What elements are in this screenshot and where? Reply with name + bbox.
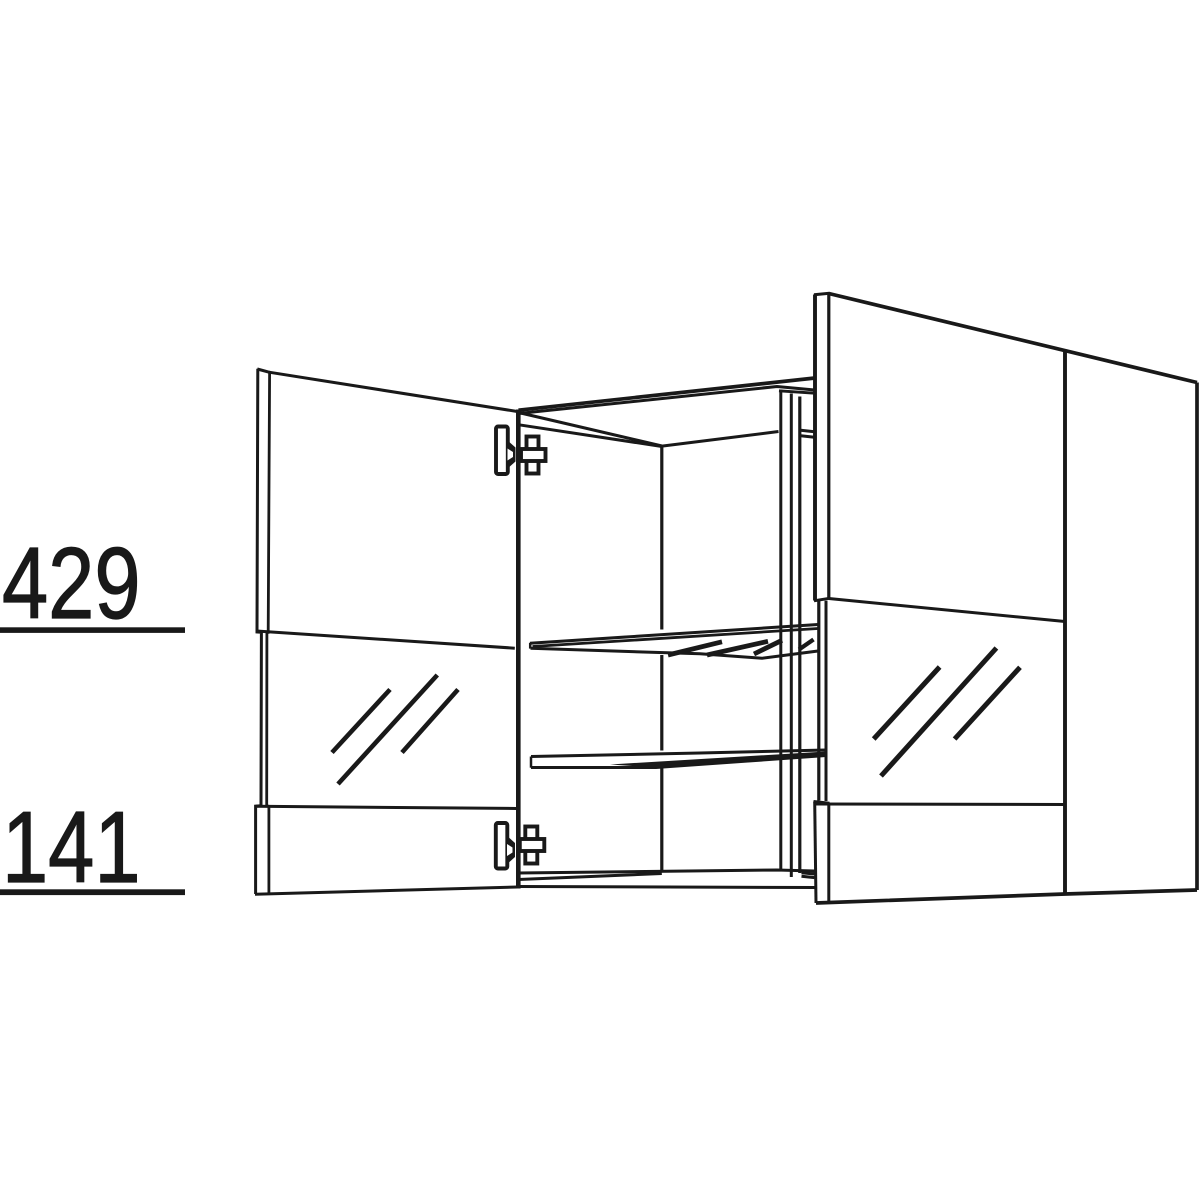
svg-text:141: 141: [2, 790, 141, 904]
svg-text:429: 429: [2, 526, 141, 640]
